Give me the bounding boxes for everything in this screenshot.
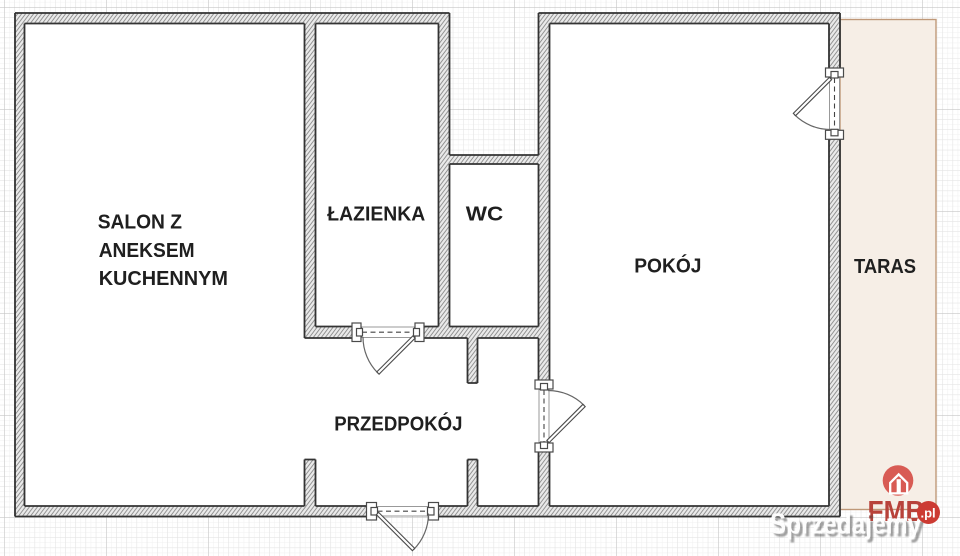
svg-text:WC: WC: [466, 202, 504, 225]
svg-text:.pl: .pl: [921, 506, 936, 521]
svg-text:KUCHENNYM: KUCHENNYM: [99, 267, 228, 290]
svg-text:ŁAZIENKA: ŁAZIENKA: [327, 202, 425, 225]
svg-text:ANEKSEM: ANEKSEM: [99, 239, 195, 262]
svg-text:TARAS: TARAS: [854, 255, 916, 278]
svg-text:PRZEDPOKÓJ: PRZEDPOKÓJ: [334, 412, 462, 436]
svg-text:SALON Z: SALON Z: [98, 211, 182, 234]
svg-text:POKÓJ: POKÓJ: [634, 254, 701, 278]
svg-text:Sprzedajemy: Sprzedajemy: [770, 509, 921, 541]
